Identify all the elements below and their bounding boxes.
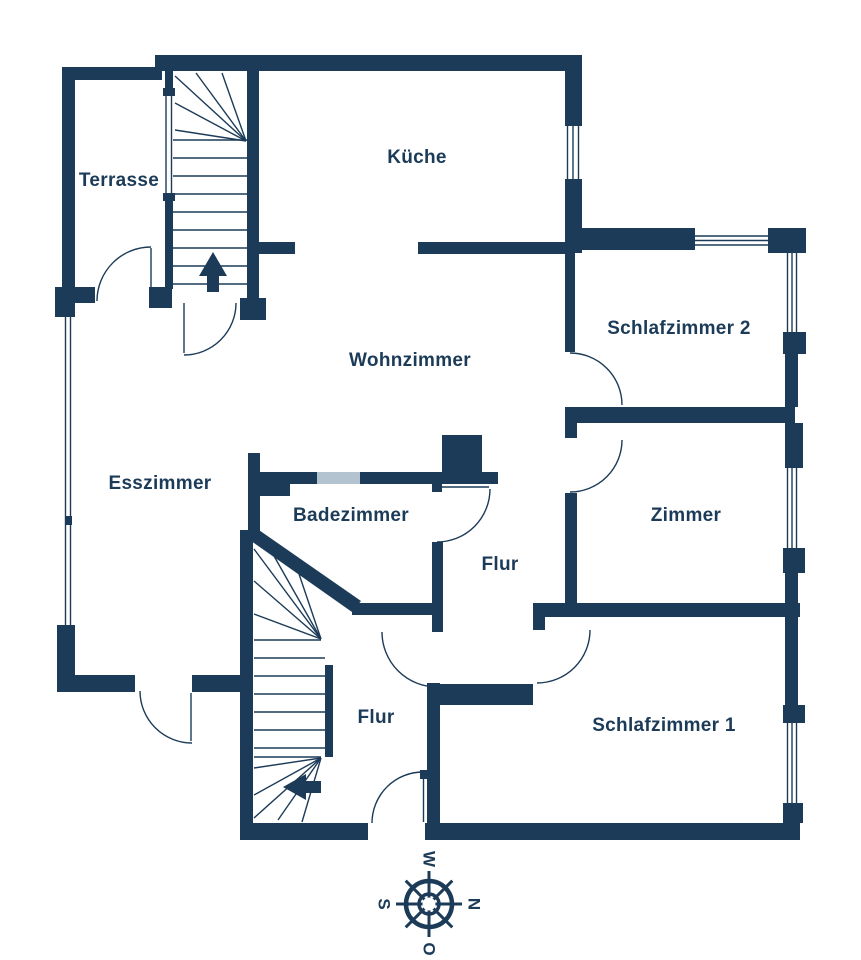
terrasse-north-wall bbox=[62, 67, 162, 80]
upper-staircase bbox=[173, 73, 247, 292]
terrasse-west-wall bbox=[62, 67, 75, 303]
schlafzimmer2-north-wall bbox=[567, 228, 695, 250]
zimmer-door bbox=[570, 440, 622, 492]
room-label-terrasse: Terrasse bbox=[79, 170, 159, 191]
compass-letter-s: S bbox=[375, 898, 394, 909]
room-label-flur-oben: Flur bbox=[481, 554, 518, 575]
floorplan-page: Terrasse Küche Wohnzimmer Schlafzimmer 2… bbox=[0, 0, 861, 960]
kueche-east-wall bbox=[565, 55, 582, 126]
compass-rose-icon: N O S W bbox=[375, 851, 484, 956]
badezimmer-south-wall bbox=[352, 603, 433, 615]
esszimmer-south-wall bbox=[57, 675, 135, 692]
chimney-block bbox=[442, 435, 482, 473]
badezimmer-east-wall bbox=[432, 542, 443, 615]
room-label-schlafzimmer2: Schlafzimmer 2 bbox=[607, 318, 751, 339]
flur-zimmer-wall bbox=[565, 493, 577, 608]
badezimmer-diagonal-wall bbox=[244, 528, 361, 612]
room-label-esszimmer: Esszimmer bbox=[108, 473, 211, 494]
compass-letter-o: O bbox=[420, 942, 439, 955]
schlafzimmer2-zimmer-wall bbox=[577, 407, 795, 423]
schlafzimmer1-door bbox=[537, 630, 590, 683]
badezimmer-west-wall bbox=[248, 453, 260, 535]
room-label-badezimmer: Badezimmer bbox=[293, 505, 409, 526]
flur-door bbox=[382, 632, 437, 687]
compass-letter-n: N bbox=[465, 898, 484, 910]
bottom-wall-left bbox=[240, 823, 368, 840]
room-label-schlafzimmer1: Schlafzimmer 1 bbox=[592, 715, 736, 736]
lower-staircase bbox=[254, 549, 325, 822]
kueche-south-wall bbox=[418, 242, 567, 254]
stairs-up-arrow-icon bbox=[199, 252, 227, 292]
floorplan-svg: Terrasse Küche Wohnzimmer Schlafzimmer 2… bbox=[0, 0, 861, 960]
schlafzimmer1-north-wall bbox=[538, 603, 800, 617]
room-label-flur-unten: Flur bbox=[357, 707, 394, 728]
doors bbox=[97, 247, 622, 823]
room-label-kueche: Küche bbox=[387, 147, 447, 168]
room-label-wohnzimmer: Wohnzimmer bbox=[349, 350, 471, 371]
compass-letter-w: W bbox=[420, 851, 439, 868]
compass-hub bbox=[423, 898, 436, 911]
schlafzimmer2-door bbox=[570, 353, 622, 405]
upper-stair-east-wall bbox=[247, 71, 259, 318]
bottom-wall-right bbox=[425, 823, 800, 840]
room-label-zimmer: Zimmer bbox=[651, 505, 722, 526]
schlafzimmer2-west-wall bbox=[565, 248, 575, 352]
upper-stair-treads bbox=[173, 73, 247, 284]
glass-panel bbox=[317, 472, 360, 484]
